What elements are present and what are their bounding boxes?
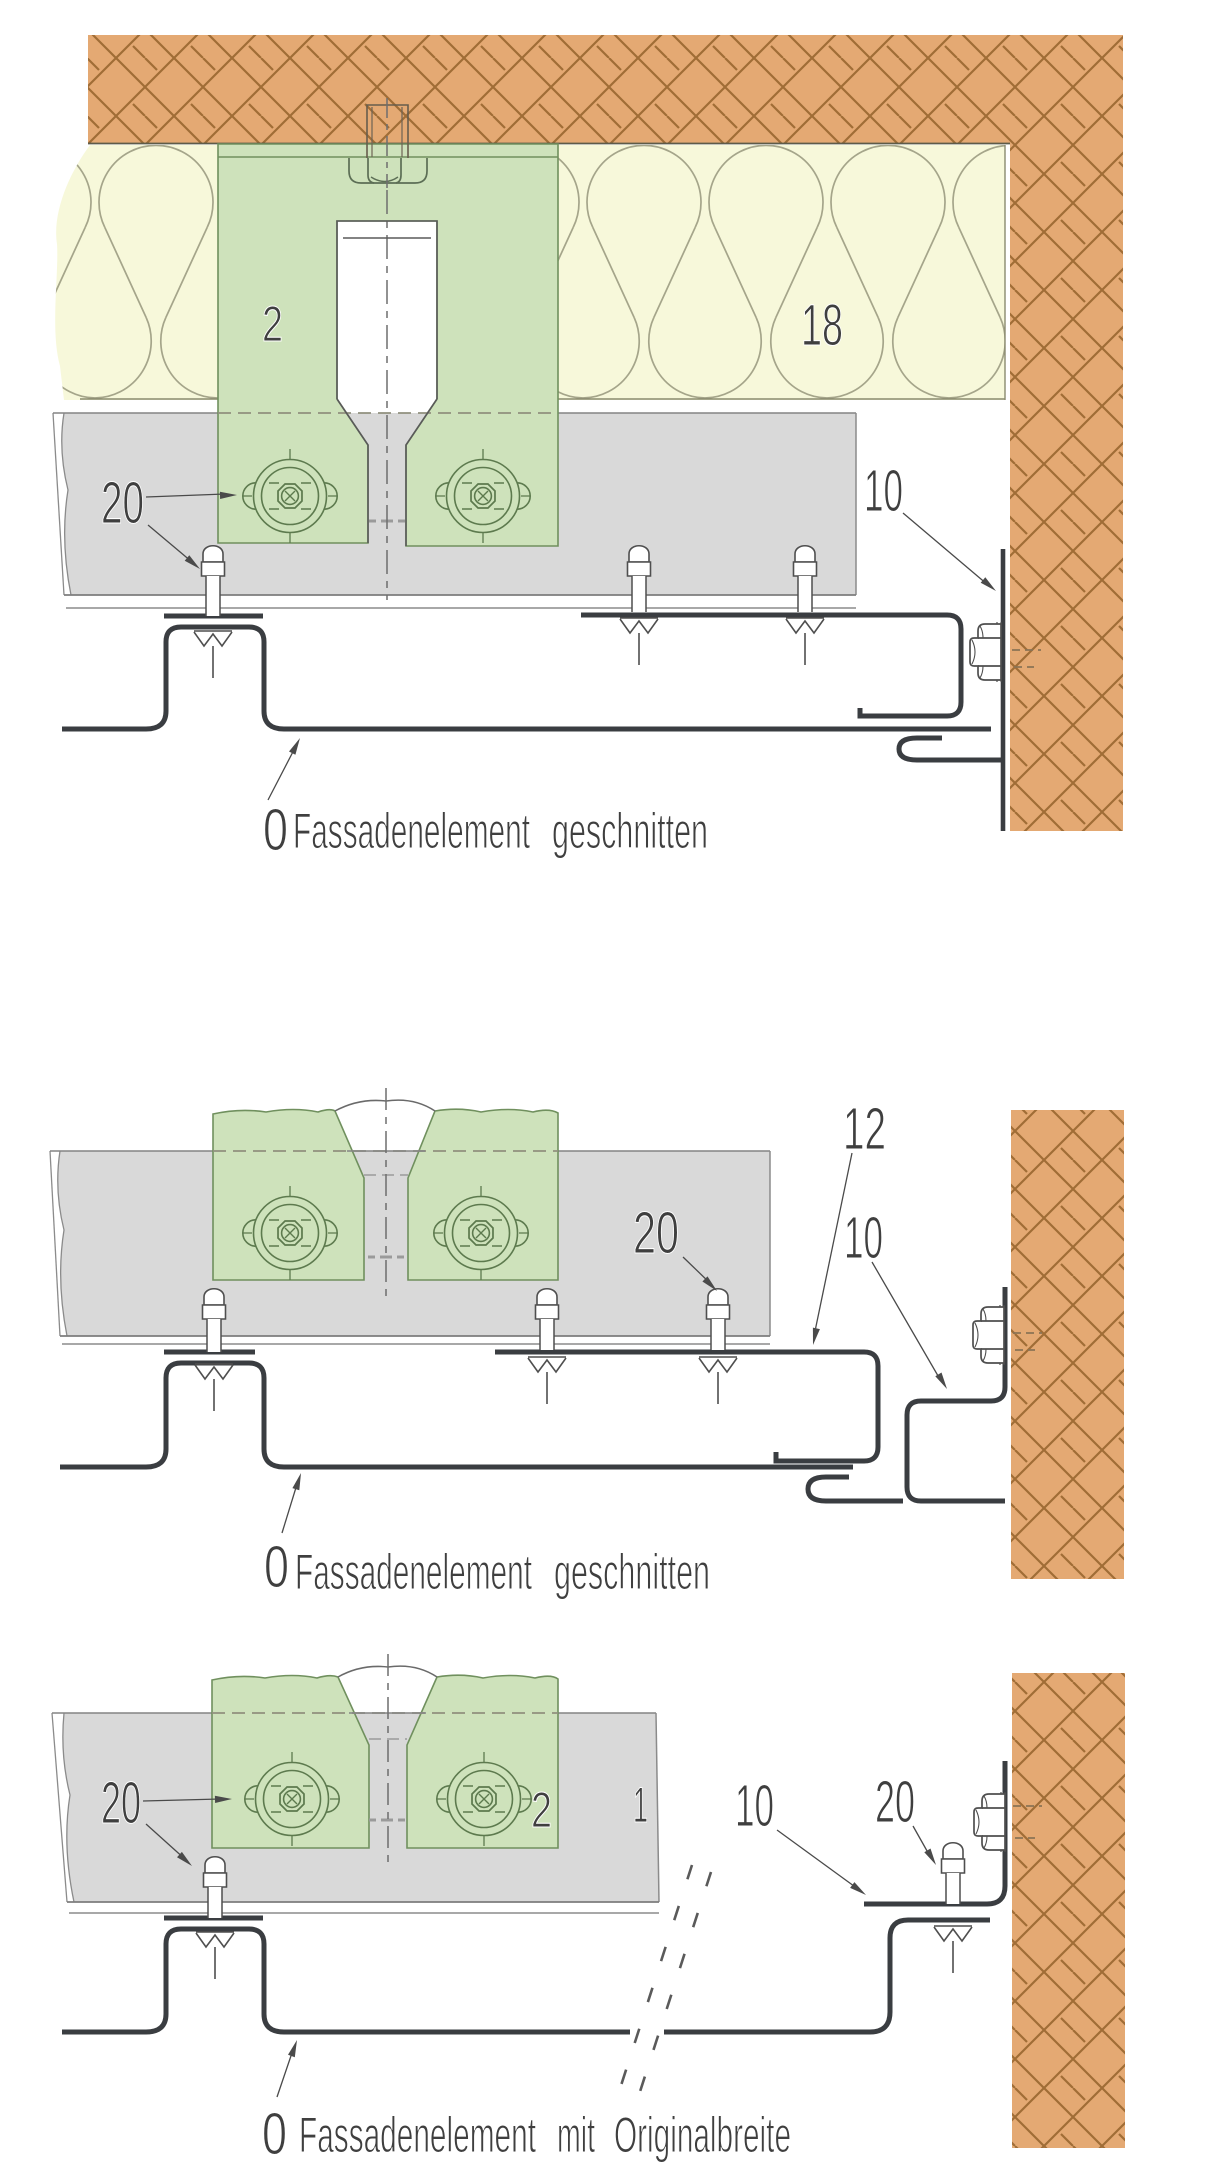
svg-text:1: 1 (633, 1777, 648, 1833)
svg-text:geschnitten: geschnitten (554, 1544, 710, 1600)
svg-text:Fassadenelement: Fassadenelement (293, 803, 530, 859)
svg-text:12: 12 (843, 1096, 886, 1162)
svg-text:10: 10 (735, 1773, 774, 1839)
svg-text:10: 10 (844, 1205, 883, 1271)
svg-text:20: 20 (101, 470, 144, 536)
svg-text:0: 0 (263, 797, 288, 863)
svg-text:geschnitten: geschnitten (552, 803, 708, 859)
svg-text:2: 2 (531, 1782, 552, 1838)
svg-text:mit: mit (557, 2107, 595, 2163)
svg-text:Fassadenelement: Fassadenelement (299, 2107, 536, 2163)
svg-text:2: 2 (262, 296, 283, 352)
svg-text:18: 18 (801, 293, 843, 358)
svg-text:10: 10 (864, 458, 903, 524)
svg-text:0: 0 (262, 2101, 287, 2167)
svg-text:20: 20 (101, 1770, 141, 1836)
svg-text:20: 20 (633, 1200, 679, 1266)
svg-text:Fassadenelement: Fassadenelement (295, 1544, 532, 1600)
svg-text:Originalbreite: Originalbreite (614, 2107, 791, 2163)
svg-text:20: 20 (875, 1769, 915, 1835)
svg-text:0: 0 (264, 1534, 289, 1600)
